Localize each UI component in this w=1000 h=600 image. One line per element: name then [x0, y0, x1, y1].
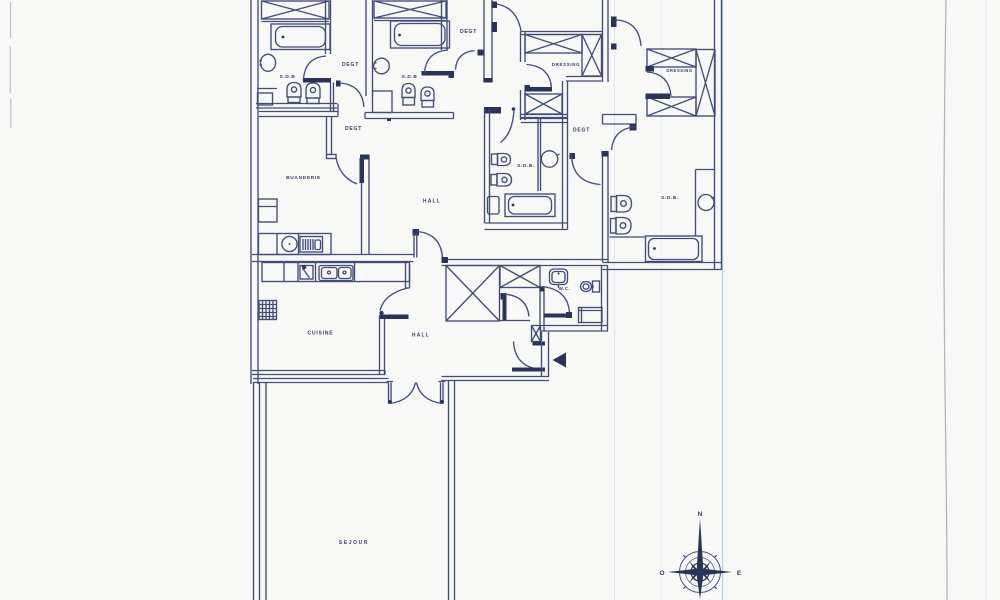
svg-text:E: E: [737, 570, 742, 577]
svg-text:DRESSING: DRESSING: [552, 62, 581, 67]
svg-text:O: O: [659, 570, 664, 577]
svg-text:DEGT: DEGT: [342, 62, 359, 68]
svg-text:DEGT: DEGT: [345, 126, 362, 132]
svg-text:HALL: HALL: [423, 199, 441, 205]
svg-text:SEJOUR: SEJOUR: [339, 540, 369, 546]
svg-text:S.D.B.: S.D.B.: [517, 163, 535, 169]
svg-text:S.D.B: S.D.B: [280, 74, 296, 80]
svg-text:S.D.B.: S.D.B.: [661, 195, 679, 201]
svg-text:S.D.B: S.D.B: [402, 74, 418, 80]
svg-text:W.C.: W.C.: [559, 286, 571, 291]
svg-text:DEGT: DEGT: [573, 128, 590, 134]
svg-text:N: N: [698, 511, 703, 518]
svg-text:DRESSING: DRESSING: [666, 68, 692, 73]
svg-text:DEGT: DEGT: [460, 29, 477, 35]
svg-text:BUANDERIE: BUANDERIE: [286, 175, 321, 181]
svg-text:CUISINE: CUISINE: [308, 331, 334, 337]
svg-text:HALL: HALL: [412, 333, 430, 339]
